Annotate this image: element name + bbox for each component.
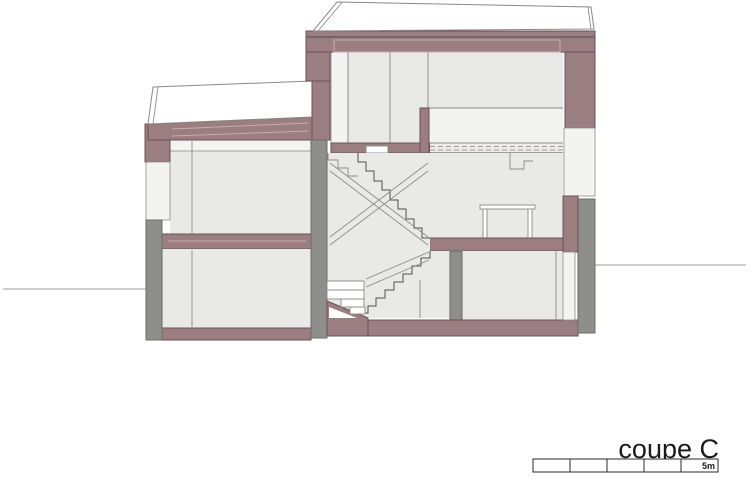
basement-room bbox=[462, 251, 563, 320]
winder-tread-2 bbox=[327, 290, 364, 299]
main-roof-plane bbox=[313, 2, 594, 31]
right-wall-foundation bbox=[578, 199, 595, 333]
basement-partition-wall bbox=[450, 251, 462, 321]
scale-bar-frame bbox=[533, 459, 718, 472]
winder-tread-4 bbox=[350, 307, 365, 314]
left-bottom-slab bbox=[162, 328, 311, 340]
right-wall-upper bbox=[565, 52, 595, 128]
desk-room bbox=[430, 153, 563, 238]
scale-bar: 5m bbox=[533, 459, 718, 472]
right-window-upper bbox=[564, 128, 595, 196]
right-wall-mid bbox=[563, 196, 578, 252]
title-block: coupe C 5m bbox=[533, 434, 719, 472]
desk-leg-right bbox=[528, 209, 532, 238]
scale-bar-label: 5m bbox=[702, 461, 715, 471]
stair-top-step bbox=[366, 146, 388, 153]
architectural-section-page: coupe C 5m bbox=[0, 0, 750, 479]
left-lower-room bbox=[162, 249, 311, 328]
left-upper-room bbox=[170, 140, 311, 234]
winder-tread-1 bbox=[327, 281, 364, 290]
main-left-wall bbox=[312, 81, 330, 140]
desk-top bbox=[480, 205, 535, 209]
desk-leg-left bbox=[483, 209, 487, 238]
winder-tread-3 bbox=[341, 299, 364, 307]
left-wall-basement bbox=[146, 220, 162, 340]
main-left-wall-top bbox=[306, 52, 330, 81]
left-block bbox=[145, 81, 312, 340]
section-drawing: coupe C 5m bbox=[0, 0, 750, 479]
desk-room-floor-slab bbox=[421, 238, 578, 251]
middle-wall-lower bbox=[311, 140, 327, 338]
right-window-lower bbox=[563, 252, 575, 320]
main-roof-slab bbox=[306, 31, 595, 52]
loft-platform-area bbox=[428, 108, 563, 143]
left-roof-plane bbox=[148, 81, 312, 124]
mid-floor-beyond bbox=[430, 143, 563, 153]
upper-room-closet-strip bbox=[331, 52, 348, 143]
left-upper-room-ceiling-strip bbox=[170, 140, 311, 151]
left-window bbox=[146, 162, 170, 220]
loft-guard-wall bbox=[420, 108, 429, 153]
